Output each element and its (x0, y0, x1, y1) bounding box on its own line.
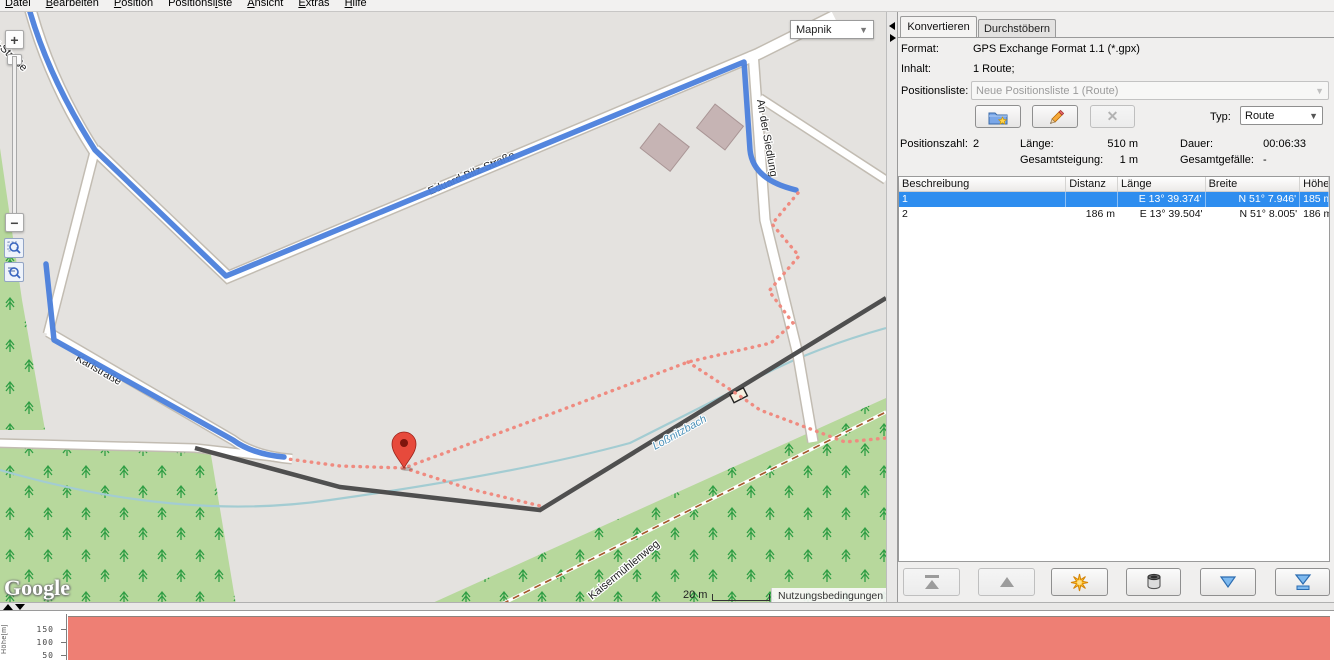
profile-area-fill (68, 616, 1330, 660)
menu-position[interactable]: Position (114, 0, 153, 11)
routeconverter-window: { "menu": { "items": [ {"pre":"","key":"… (0, 0, 1334, 660)
menu-bearbeiten[interactable]: Bearbeiten (46, 0, 99, 11)
map-scale: 20 m (683, 589, 770, 601)
type-value: Route (1245, 110, 1274, 122)
chevron-down-icon: ▼ (859, 25, 868, 35)
add-position-button[interactable] (1051, 568, 1108, 596)
tab-durchstoebern[interactable]: Durchstöbern (978, 19, 1056, 37)
duration-label: Dauer: (1180, 138, 1213, 150)
cylinder-delete-icon (1144, 572, 1164, 592)
horizontal-splitter[interactable] (0, 602, 1334, 611)
table-row-2[interactable]: 2 186 m E 13° 39.504' N 51° 8.005' 186 m (899, 207, 1329, 222)
move-up-button[interactable] (978, 568, 1035, 596)
tab-konvertieren[interactable]: Konvertieren (900, 16, 977, 37)
scale-label: 20 m (683, 589, 707, 601)
google-logo: Google (4, 575, 70, 601)
content-label: Inhalt: (901, 63, 931, 75)
tab-divider (898, 37, 1334, 38)
format-label: Format: (901, 43, 939, 55)
vertical-splitter[interactable] (886, 12, 898, 602)
new-positionlist-button[interactable] (975, 105, 1021, 128)
convert-panel: Konvertieren Durchstöbern Format: GPS Ex… (898, 12, 1334, 602)
positionlist-combobox[interactable]: Neue Positionsliste 1 (Route) ▼ (971, 81, 1329, 100)
type-label: Typ: (1210, 111, 1231, 123)
column-breite[interactable]: Breite (1206, 177, 1301, 191)
column-laenge[interactable]: Länge (1118, 177, 1206, 191)
positionlist-label: Positionsliste: (901, 85, 968, 97)
delete-position-button[interactable] (1126, 568, 1181, 596)
positions-table: Beschreibung Distanz Länge Breite Höhe 1… (898, 176, 1330, 562)
collapse-left-icon[interactable] (889, 22, 895, 30)
zoom-out-rect-button[interactable] (4, 262, 24, 282)
menu-ansicht[interactable]: Ansicht (247, 0, 283, 11)
menu-extras[interactable]: Extras (298, 0, 329, 11)
magnifier-plus-icon (7, 241, 21, 255)
collapse-up-icon[interactable] (3, 604, 13, 610)
positioncount-label: Positionszahl: (900, 138, 968, 150)
chevron-down-icon: ▼ (1315, 86, 1324, 96)
duration-value: 00:06:33 (1228, 138, 1306, 150)
length-value: 510 m (1048, 138, 1138, 150)
profile-ylabel: Höhe[m] (1, 619, 13, 659)
map-layer-select[interactable]: Mapnik ▼ (790, 20, 874, 39)
zoom-in-button[interactable]: + (5, 30, 24, 49)
ytick-150: 150 (20, 625, 54, 634)
descent-value: - (1263, 154, 1267, 166)
zoom-rect-button[interactable] (4, 238, 24, 258)
column-hoehe[interactable]: Höhe (1300, 177, 1329, 191)
add-star-icon (1069, 572, 1090, 593)
menu-hilfe[interactable]: Hilfe (345, 0, 367, 11)
map-panel[interactable]: Bilz-Straße Eduard-Bilz-Straße An der Si… (0, 12, 886, 602)
content-value: 1 Route; (973, 63, 1015, 75)
map-canvas: Bilz-Straße Eduard-Bilz-Straße An der Si… (0, 12, 886, 602)
move-bottom-icon (1293, 573, 1313, 592)
menu-datei[interactable]: Datei (5, 0, 31, 11)
format-value: GPS Exchange Format 1.1 (*.gpx) (973, 43, 1140, 55)
x-icon: ✕ (1107, 108, 1119, 125)
ytick-50: 50 (20, 651, 54, 660)
rename-positionlist-button[interactable] (1032, 105, 1078, 128)
ascent-value: 1 m (1048, 154, 1138, 166)
move-bottom-button[interactable] (1275, 568, 1330, 596)
menu-bar: Datei Bearbeiten Position Positionsliste… (0, 0, 1334, 12)
move-top-icon (922, 573, 942, 591)
move-down-button[interactable] (1200, 568, 1256, 596)
positioncount-value: 2 (973, 138, 979, 150)
chevron-down-icon: ▼ (1309, 111, 1318, 121)
descent-label: Gesamtgefälle: (1180, 154, 1254, 166)
menu-positionsliste[interactable]: Positionsliste (168, 0, 232, 11)
map-layer-value: Mapnik (796, 24, 831, 36)
pencil-icon (1046, 108, 1064, 125)
collapse-down-icon[interactable] (15, 604, 25, 610)
zoom-slider-track[interactable] (12, 56, 17, 214)
column-distanz[interactable]: Distanz (1066, 177, 1118, 191)
column-beschreibung[interactable]: Beschreibung (899, 177, 1066, 191)
new-list-folder-icon (988, 109, 1008, 125)
move-top-button[interactable] (903, 568, 960, 596)
zoom-out-button[interactable]: − (5, 213, 24, 232)
magnifier-lines-icon (7, 265, 21, 279)
move-up-icon (997, 574, 1017, 590)
profile-y-axis (66, 614, 67, 660)
table-header[interactable]: Beschreibung Distanz Länge Breite Höhe (899, 177, 1329, 192)
delete-positionlist-button[interactable]: ✕ (1090, 105, 1135, 128)
elevation-profile-panel: Höhe[m] 150 100 50 (0, 611, 1334, 660)
move-down-icon (1218, 574, 1238, 590)
map-attribution-link[interactable]: Nutzungsbedingungen (771, 588, 886, 602)
table-row-1[interactable]: 1 E 13° 39.374' N 51° 7.946' 185 m (899, 192, 1329, 207)
type-combobox[interactable]: Route ▼ (1240, 106, 1323, 125)
ytick-100: 100 (20, 638, 54, 647)
collapse-right-icon[interactable] (890, 34, 896, 42)
scale-bar (712, 594, 770, 601)
positionlist-value: Neue Positionsliste 1 (Route) (976, 85, 1118, 97)
